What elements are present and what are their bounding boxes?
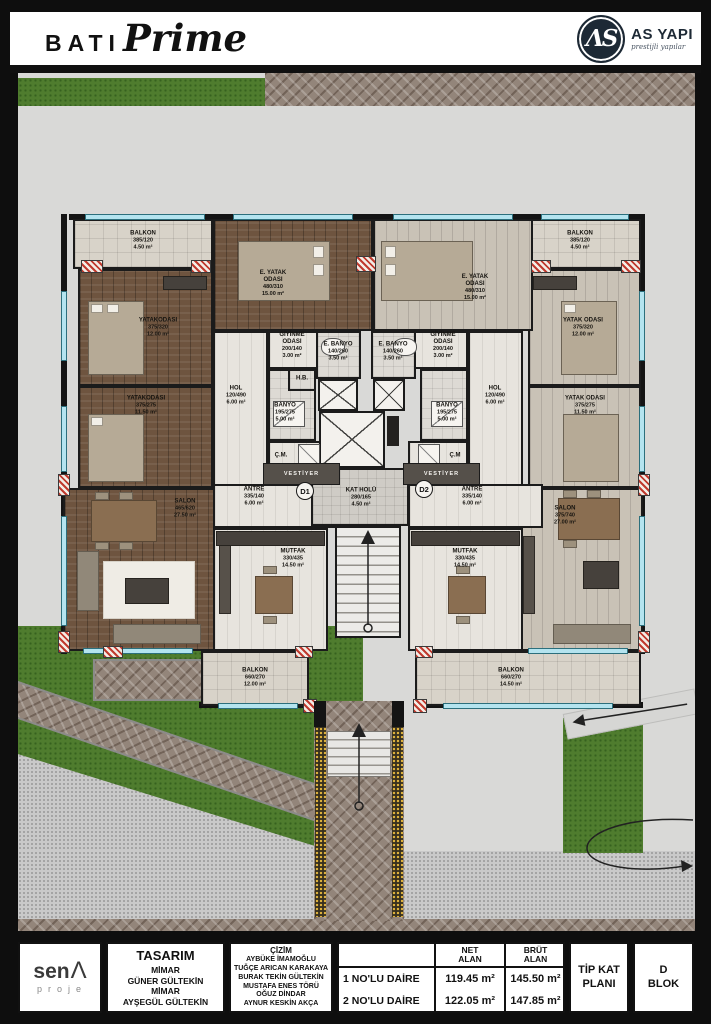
pillow <box>313 246 324 258</box>
bati-prime-logo: BATI Prime <box>45 18 247 62</box>
plan-type-label: TİP KAT PLANI <box>577 964 621 992</box>
room-label: KAT HOLÜ280/1654.50 m² <box>346 488 377 509</box>
turning-arrow <box>573 808 695 883</box>
room-label: HOL120/4906.00 m² <box>226 386 246 407</box>
table-row-label: 2 NO'LU DAİRE <box>339 990 434 1011</box>
column-pier <box>413 699 427 713</box>
pillow <box>91 304 103 313</box>
chair <box>119 542 133 550</box>
wall-stub-left <box>314 701 326 727</box>
chair <box>563 490 577 498</box>
pillow <box>385 264 396 276</box>
chair <box>587 490 601 498</box>
door-tag-d2: D2 <box>415 480 433 498</box>
drawing-line: AYBÜKE İMAMOĞLU <box>246 956 316 965</box>
armchair <box>77 551 99 611</box>
room-label: GİYİNME ODASI200/1403.00 m² <box>426 332 460 360</box>
window <box>83 648 193 654</box>
coffee-table <box>583 561 619 589</box>
column-pier <box>295 646 313 658</box>
tv-unit <box>219 536 231 614</box>
chair <box>563 540 577 548</box>
column-pier <box>531 260 551 273</box>
column-pier <box>81 260 103 273</box>
window <box>218 703 298 709</box>
room-label: BALKON385/1204.50 m² <box>567 231 593 252</box>
window <box>233 214 353 220</box>
stairs-arrow <box>355 530 381 634</box>
pillow <box>107 304 119 313</box>
wall-stub-right <box>392 701 404 727</box>
sofa <box>553 624 631 644</box>
table-header-brut: BRÜT ALAN <box>504 944 565 968</box>
wardrobe-band-a2: VESTİYER <box>403 463 480 485</box>
bed <box>563 414 619 482</box>
as-yapi-logo: ΛS AS YAPI prestijli yapılar <box>577 15 693 62</box>
room-label: H.B. <box>296 376 308 383</box>
chair <box>456 616 470 624</box>
sena-sub: proje <box>37 984 87 994</box>
drawing-line: OĞUZ DİNDAR <box>256 991 305 1000</box>
drawing-line: MUSTAFA ENES TÖRÜ <box>243 983 319 992</box>
table-cell-net: 119.45 m² <box>434 968 504 990</box>
window <box>528 648 628 654</box>
room-label: E. YATAK ODASI480/31015.00 m² <box>250 270 296 298</box>
chair <box>95 542 109 550</box>
kitchen-table <box>448 576 486 614</box>
design-title: TASARIM <box>136 948 194 964</box>
tv-unit <box>523 536 535 614</box>
sena-mark-icon: Λ <box>71 961 87 981</box>
window <box>639 516 645 626</box>
table-row-label: 1 NO'LU DAİRE <box>339 968 434 990</box>
column-pier <box>356 256 376 272</box>
design-line: GÜNER GÜLTEKİN <box>128 976 204 987</box>
chair <box>263 566 277 574</box>
column-pier <box>621 260 641 273</box>
window <box>61 516 67 626</box>
room-label: SALON465/62027.50 m² <box>174 499 196 520</box>
column-pier <box>638 631 650 653</box>
room-label: MUTFAK330/43514.50 m² <box>453 549 478 570</box>
site-plan: VESTİYER VESTİYER <box>18 73 695 931</box>
entrance-arrow <box>347 723 371 811</box>
wardrobe <box>163 276 207 290</box>
flower-bed-right <box>392 727 403 917</box>
room-label: E. YATAK ODASI480/31015.00 m² <box>452 274 498 302</box>
pillow <box>385 246 396 258</box>
meter-cabinet <box>387 416 399 446</box>
column-pier <box>415 646 433 658</box>
block-label: D BLOK <box>647 964 681 992</box>
door-tag-d1: D1 <box>296 482 314 500</box>
window <box>639 406 645 472</box>
chair <box>263 616 277 624</box>
sofa <box>113 624 201 644</box>
design-credits: TASARIM MİMAR GÜNER GÜLTEKİN MİMAR AYŞEG… <box>106 942 225 1013</box>
area-table: NET ALAN BRÜT ALAN 1 NO'LU DAİRE 119.45 … <box>337 942 565 1013</box>
drawing-title: ÇİZİM <box>270 946 292 956</box>
vestiyer-label-a1: VESTİYER <box>284 471 319 477</box>
block-box: D BLOK <box>633 942 694 1013</box>
column-pier <box>58 631 70 653</box>
header-divider <box>10 65 701 73</box>
entrance-walkway <box>314 701 404 921</box>
design-line: MİMAR <box>151 986 180 997</box>
drawing-line: TUĞÇE ARICAN KARAKAYA <box>234 965 328 974</box>
sena-proje-logo: senΛ proje <box>18 942 102 1013</box>
drawing-line: BURAK TEKİN GÜLTEKİN <box>238 974 323 983</box>
room-label: BANYO195/2755.00 m² <box>436 403 458 424</box>
chair <box>95 492 109 500</box>
as-yapi-name: AS YAPI <box>631 27 693 42</box>
elevator-small-left <box>318 379 358 411</box>
room-label: E. BANYO140/2603.50 m² <box>378 342 407 363</box>
elevator-main <box>319 411 385 468</box>
window <box>61 406 67 472</box>
header-band: BATI Prime ΛS AS YAPI prestijli yapılar <box>10 12 701 65</box>
as-yapi-monogram-icon: ΛS <box>577 15 625 63</box>
wardrobe <box>533 276 577 290</box>
room-label: HOL120/4906.00 m² <box>485 386 505 407</box>
room-label: BALKON660/27012.00 m² <box>242 668 268 689</box>
window <box>393 214 513 220</box>
room-label: BANYO195/2755.00 m² <box>274 403 296 424</box>
grass-strip-top <box>18 78 265 106</box>
room-label: MUTFAK330/43514.50 m² <box>281 549 306 570</box>
brand-prime-text: Prime <box>123 18 247 58</box>
room-label: Ç.M <box>450 453 461 460</box>
window <box>639 291 645 361</box>
room-label: YATAK ODASI375/32012.00 m² <box>563 318 603 339</box>
kitchen-counter <box>216 531 325 546</box>
as-yapi-tagline: prestijli yapılar <box>631 44 693 51</box>
plan-type-box: TİP KAT PLANI <box>569 942 629 1013</box>
room-label: ANTRE335/1406.00 m² <box>244 487 265 508</box>
room-hall-a1 <box>213 331 268 488</box>
design-line: AYŞEGÜL GÜLTEKİN <box>123 997 208 1008</box>
table-header-empty <box>339 944 434 968</box>
poster-page: BATI Prime ΛS AS YAPI prestijli yapılar <box>0 0 711 1024</box>
pillow <box>313 264 324 276</box>
room-label: Ç.M. <box>275 453 288 460</box>
room-label: BALKON385/1204.50 m² <box>130 231 156 252</box>
room-label: BALKON660/27014.50 m² <box>498 668 524 689</box>
room-label: YATAKODASI375/32012.00 m² <box>139 318 177 339</box>
chair <box>119 492 133 500</box>
room-label: SALON375/74027.00 m² <box>554 506 576 527</box>
room-label: YATAK ODASI375/27511.50 m² <box>565 396 605 417</box>
column-pier <box>638 474 650 496</box>
building-plan: VESTİYER VESTİYER <box>63 216 643 708</box>
room-label: E. BANYO140/2603.50 m² <box>323 342 352 363</box>
dining-table <box>91 500 157 542</box>
kitchen-counter <box>411 531 520 546</box>
drawing-credits: ÇİZİM AYBÜKE İMAMOĞLU TUĞÇE ARICAN KARAK… <box>229 942 333 1013</box>
column-pier <box>58 474 70 496</box>
room-label: ANTRE335/1406.00 m² <box>462 487 483 508</box>
brand-bati-text: BATI <box>45 30 121 57</box>
pillow <box>91 417 103 426</box>
window <box>85 214 205 220</box>
design-line: MİMAR <box>151 965 180 976</box>
room-label: YATAKODASI375/27511.50 m² <box>127 396 165 417</box>
column-pier <box>103 646 123 658</box>
pillow <box>564 304 576 313</box>
table-header-net: NET ALAN <box>434 944 504 968</box>
drawing-line: AYNUR KESKİN AKÇA <box>244 1000 319 1009</box>
table-cell-net: 122.05 m² <box>434 990 504 1011</box>
window <box>61 291 67 361</box>
window <box>541 214 629 220</box>
column-pier <box>191 260 211 273</box>
kitchen-table <box>255 576 293 614</box>
vestiyer-label-a2: VESTİYER <box>424 471 459 477</box>
room-label: GİYİNME ODASI200/1403.00 m² <box>275 332 309 360</box>
sena-name: sen <box>33 962 69 982</box>
flower-bed-left <box>315 727 326 917</box>
pavement-strip-top <box>265 73 695 106</box>
table-cell-brut: 147.85 m² <box>504 990 565 1011</box>
elevator-small-right <box>373 379 405 411</box>
coffee-table <box>125 578 169 604</box>
table-cell-brut: 145.50 m² <box>504 968 565 990</box>
room-balcony-bottom-a2 <box>415 651 641 706</box>
